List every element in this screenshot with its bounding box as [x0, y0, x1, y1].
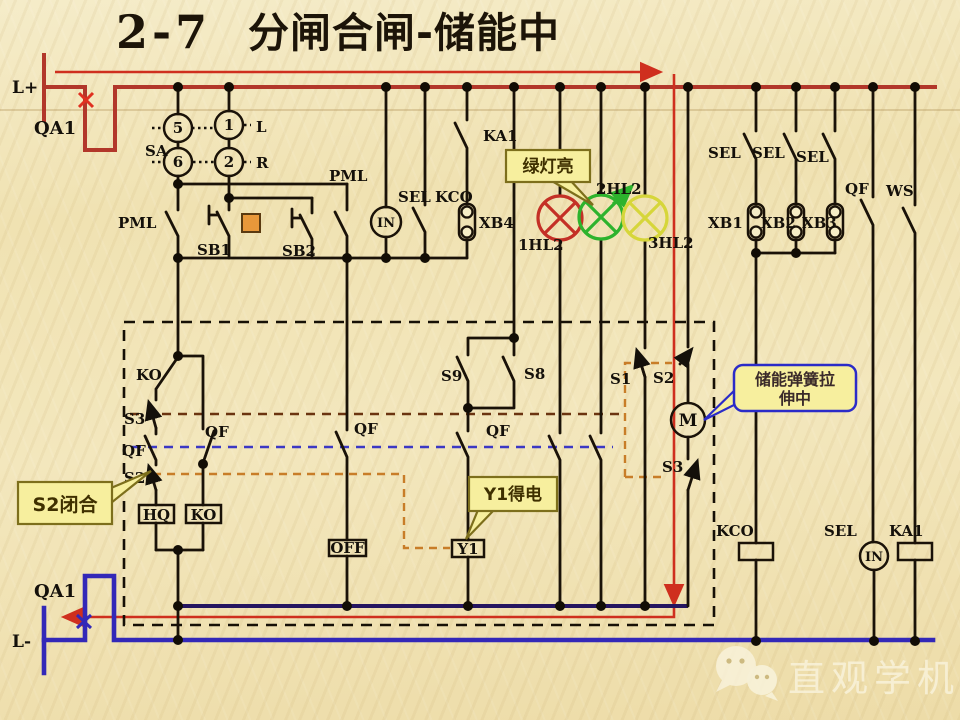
sa-num-1: 1	[224, 116, 234, 134]
callout-spring: 储能弹簧拉 伸中	[704, 365, 856, 420]
callout-spring-text1: 储能弹簧拉	[754, 370, 835, 389]
off-column: QF OFF	[329, 258, 378, 606]
qf-right-branch-label: QF	[205, 423, 229, 441]
page-title: 分闸合闸-储能中	[248, 9, 560, 57]
circuit-svg: 2-7 分闸合闸-储能中 5 6 1 2 SA L R	[0, 0, 960, 720]
sel-bottom-label: SEL	[824, 522, 857, 540]
sa-num-2: 2	[224, 153, 234, 171]
watermark: 直观学机械	[716, 646, 960, 701]
ka1-contact-label: KA1	[483, 127, 518, 145]
kco-coil-box	[739, 543, 773, 560]
s2-right-label: S2	[653, 369, 674, 387]
off-coil-label: OFF	[330, 539, 365, 557]
y1-coil-label: Y1	[456, 540, 478, 558]
sel-contact-left	[413, 87, 425, 258]
kco-coil-label: KCO	[716, 522, 754, 540]
xb1-label: XB1	[708, 214, 743, 232]
qf-mid-label: QF	[354, 420, 378, 438]
motor-column: M S2 S3	[653, 87, 705, 606]
callout-y1: Y1得电	[466, 477, 557, 539]
qf-left-label: QF	[122, 442, 146, 460]
qa1-bottom-label: QA1	[34, 581, 76, 602]
qa1-top-label: QA1	[34, 118, 76, 139]
hq-coil-label: HQ	[143, 506, 170, 524]
xb4-label: XB4	[479, 214, 514, 232]
sel-label-1: SEL	[708, 144, 741, 162]
callout-s2: S2闭合	[18, 471, 151, 524]
sb1-label: SB1	[197, 241, 231, 259]
s3-left-label: S3	[124, 410, 145, 428]
s9-s8-branch: S9 S8 QF Y1	[441, 338, 545, 606]
sa-selector: 5 6 1 2 SA L R	[145, 87, 269, 210]
in-top-label: IN	[377, 216, 395, 231]
sa-label: SA	[145, 142, 168, 160]
callout-y1-tail	[466, 510, 494, 539]
qf-y1-label: QF	[486, 422, 510, 440]
ko-contact-label: KO	[136, 366, 162, 384]
sel-label-3: SEL	[796, 148, 829, 166]
slide-number: 2-7	[116, 5, 211, 59]
s9-label: S9	[441, 367, 462, 385]
slide-circuit-diagram: 2-7 分闸合闸-储能中 5 6 1 2 SA L R	[0, 0, 960, 720]
motor-label: M	[679, 411, 698, 431]
branch-rails	[178, 184, 347, 198]
pml-right-contact	[335, 184, 347, 258]
pml-left-label: PML	[118, 214, 157, 232]
s2-right-contact	[680, 350, 691, 364]
hl2-label: 2HL2	[596, 180, 642, 198]
sa-num-6: 6	[173, 153, 183, 171]
s3-right-label: S3	[662, 458, 683, 476]
pml-right-label: PML	[329, 167, 368, 185]
lamp-1hl2	[538, 196, 582, 240]
xb4-fuse	[459, 204, 475, 240]
ka1-coil-label: KA1	[889, 522, 924, 540]
s3-left-contact	[149, 403, 156, 428]
hl3-column	[637, 87, 645, 606]
s8-label: S8	[524, 365, 545, 383]
orange-button	[242, 214, 260, 232]
sel-label-left: SEL	[398, 188, 431, 206]
sa-pos-l: L	[256, 118, 267, 136]
s1-label: S1	[610, 370, 631, 388]
callout-green-light: 绿灯亮	[506, 150, 593, 205]
l-minus-label: L-	[12, 632, 31, 652]
wechat-icon	[716, 646, 778, 701]
qf-top-right-label: QF	[845, 180, 869, 198]
closing-branch: QF KO S3 QF S2 HQ KO	[122, 258, 229, 640]
callout-green-tail	[550, 180, 593, 205]
xb3-label: XB3	[802, 214, 837, 232]
callout-y1-text: Y1得电	[483, 484, 542, 505]
xb2-label: XB2	[761, 214, 796, 232]
callout-green-text: 绿灯亮	[523, 156, 574, 177]
l-plus-label: L+	[12, 78, 38, 98]
sa-pos-r: R	[256, 154, 269, 172]
ws-label: WS	[885, 182, 914, 200]
ko-coil-label: KO	[191, 506, 217, 524]
pml-left-contact	[166, 212, 178, 258]
in-bottom-label: IN	[865, 550, 883, 565]
ws-ka1-column	[903, 87, 915, 641]
watermark-text: 直观学机械	[788, 657, 960, 700]
s3-right-contact	[688, 462, 697, 490]
coil-join	[156, 550, 203, 640]
qf-y1-column	[457, 408, 468, 606]
ka1-coil-box	[898, 543, 932, 560]
sel-label-2: SEL	[752, 144, 785, 162]
callout-spring-text2: 伸中	[778, 389, 811, 408]
callout-spring-tail	[704, 389, 736, 420]
sa-num-5: 5	[173, 119, 183, 137]
callout-s2-text: S2闭合	[33, 493, 99, 516]
kco-column	[756, 253, 835, 641]
hl1-label: 1HL2	[518, 236, 564, 254]
